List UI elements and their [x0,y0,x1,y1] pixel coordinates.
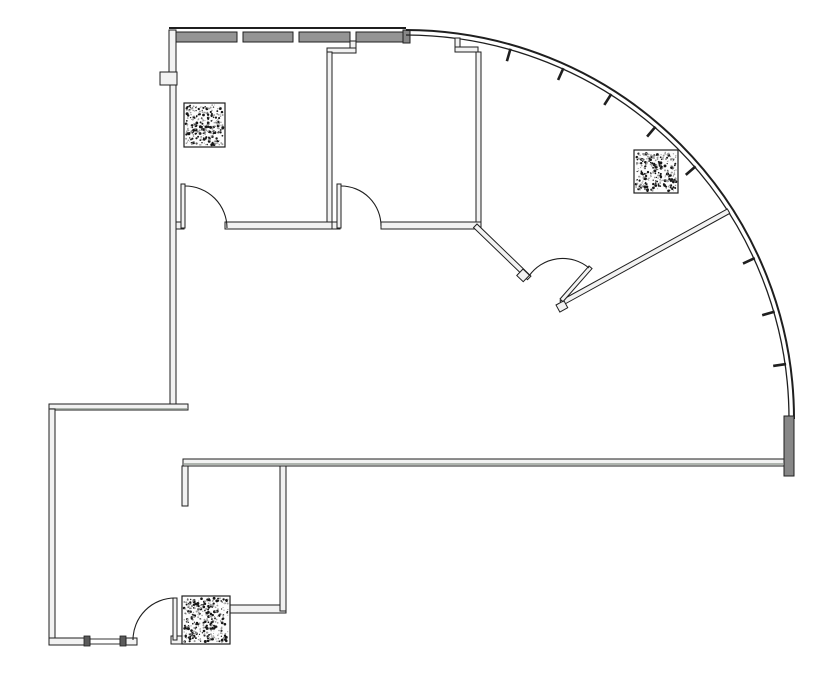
stipple-dot [187,620,189,622]
stipple-dot [198,623,200,625]
stipple-dot [646,161,648,163]
stipple-dot [659,182,660,183]
stipple-dot [217,113,218,114]
column-top-left [184,103,225,147]
top-wall-glazing-segment [169,32,237,42]
stipple-dot [198,601,199,602]
stipple-dot [201,123,203,125]
bottom-wall-segment [126,638,137,645]
stipple-dot [211,136,212,137]
stipple-dot [211,126,212,127]
stipple-dot [187,126,188,127]
stipple-dot [191,142,192,143]
stipple-dot [192,118,194,120]
main-bottom-wall-stub [182,466,188,506]
door-angled-room [529,258,592,301]
stipple-dot [192,131,194,133]
stipple-dot [640,155,641,156]
stipple-dot [213,128,214,129]
stipple-dot [210,601,211,602]
stipple-dot [227,631,228,632]
stipple-dot [213,136,214,137]
stipple-dot [190,629,193,632]
stipple-dot [206,618,208,620]
room1-front-wall [225,222,332,229]
stipple-dot [195,133,197,135]
stipple-dot [197,125,198,126]
stipple-dot [189,612,191,614]
stipple-dot [189,132,191,134]
stipple-dot [196,115,198,117]
stipple-dot [669,189,670,190]
stipple-dot [648,178,650,180]
stipple-dot [672,181,675,184]
stipple-dot [215,606,217,608]
stipple-dot [220,600,222,602]
stipple-dot [214,616,215,617]
stipple-dot [645,165,647,167]
stipple-dot [203,630,206,633]
stipple-dot [197,616,199,618]
stipple-dot [674,187,676,189]
stipple-dot [193,123,194,124]
stipple-dot [661,168,662,169]
stipple-dot [641,182,643,184]
stipple-dot [219,597,221,599]
stipple-dot [640,184,641,185]
stipple-dot [192,636,194,638]
stipple-dot [220,621,222,623]
left-wall-main [170,85,176,407]
stipple-dot [194,110,195,111]
stipple-dot [639,180,641,182]
stipple-dot [214,141,215,142]
stipple-dot [217,128,218,129]
stipple-dot [672,158,674,160]
door-bottom-entry [133,598,177,640]
stipple-dot [655,160,657,162]
stipple-dot [219,140,220,141]
stipple-dot [642,181,643,182]
stipple-dot [192,110,194,112]
stipple-dot [665,152,666,153]
stipple-dot [657,177,658,178]
stipple-dot [644,187,646,189]
stipple-dot [200,106,201,107]
stipple-dot [653,180,654,181]
stipple-dot [639,153,640,154]
stipple-dot [207,636,209,638]
stipple-dot [205,614,207,616]
stipple-dot [205,144,206,145]
stipple-dot [194,616,196,618]
stipple-dot [216,110,218,112]
stipple-dot [188,634,189,635]
stipple-dot [660,173,662,175]
stipple-dot [223,637,225,639]
stipple-dot [202,128,203,129]
stipple-dot [208,602,210,604]
stipple-dot [639,155,640,156]
stipple-dot [203,135,204,136]
stipple-dot [640,162,642,164]
stipple-dot [652,183,654,185]
stipple-dot [206,632,208,634]
stipple-dot [210,133,211,134]
stipple-dot [211,104,213,106]
lower-vertical-wall [280,459,286,611]
stipple-dot [647,179,648,180]
stipple-dot [207,131,209,133]
stipple-dot [662,167,663,168]
stipple-dot [202,121,203,122]
stipple-dot [641,170,643,172]
stipple-dot [187,114,189,116]
stipple-dot [220,114,221,115]
stipple-dot [184,601,185,602]
stipple-dot [201,142,202,143]
columns [182,103,678,644]
door-room2 [337,184,381,228]
stipple-dot [185,624,186,625]
stipple-dot [185,601,187,603]
stipple-dot [675,169,676,170]
stipple-dot [208,139,209,140]
stipple-dot [221,124,223,126]
stipple-dot [187,599,189,601]
stipple-dot [194,640,196,642]
stipple-dot [214,617,215,618]
stipple-dot [660,164,661,165]
angled-partitions [474,209,730,312]
stipple-dot [191,605,193,607]
stipple-dot [193,612,194,613]
stipple-dot [669,185,671,187]
stipple-dot [216,140,218,142]
stipple-dot [184,635,185,636]
stipple-dot [198,612,200,614]
stipple-dot [207,598,208,599]
stipple-dot [214,105,215,106]
stipple-dot [215,621,217,623]
stipple-dot [215,638,216,639]
stipple-dot [660,156,662,158]
stipple-dot [222,615,224,617]
stipple-dot [642,186,643,187]
stipple-dot [645,189,646,190]
stipple-dot [648,160,649,161]
stipple-dot [643,176,645,178]
stipple-dot [204,143,205,144]
stipple-dot [217,627,218,628]
stipple-dot [636,180,637,181]
door-bottom-leaf [173,598,177,640]
stipple-dot [211,635,213,637]
door-room2-swing-arc [341,186,381,226]
stipple-dot [202,107,204,109]
stipple-dot [214,637,215,638]
stipple-dot [638,176,640,178]
stipple-dot [211,614,213,616]
stipple-dot [217,142,218,143]
stipple-dot [223,607,224,608]
stipple-dot [191,108,193,110]
stipple-dot [189,640,191,642]
stipple-dot [209,117,210,118]
stipple-dot [655,173,657,175]
stipple-dot [195,137,197,139]
stipple-dot [664,169,666,171]
stipple-dot [201,615,202,616]
stipple-dot [210,633,212,635]
stipple-dot [650,164,652,166]
stipple-dot [659,179,661,181]
stipple-dot [214,125,215,126]
stipple-dot [200,607,202,609]
lower-wing-left-wall [49,409,55,645]
stipple-dot [204,106,206,108]
top-window-wall [169,28,410,43]
stipple-dot [213,142,214,143]
stipple-dot [195,633,197,635]
stipple-dot [211,624,213,626]
stipple-dot [217,604,218,605]
stipple-dot [200,631,201,632]
stipple-dot [675,178,677,180]
stipple-dot [190,625,191,626]
stipple-dot [217,622,219,624]
stipple-dot [200,136,202,138]
stipple-dot [213,631,214,632]
stipple-dot [204,120,205,121]
stipple-dot [186,142,188,144]
stipple-dot [210,626,212,628]
stipple-dot [186,604,188,606]
stipple-dot [218,640,220,642]
stipple-dot [216,122,218,124]
stipple-dot [638,170,639,171]
stipple-dot [216,611,217,612]
doors [133,184,592,640]
stipple-dot [667,173,668,174]
stipple-dot [213,626,214,627]
stipple-dot [220,613,222,615]
stipple-dot [668,178,671,181]
stipple-dot [213,633,214,634]
stipple-dot [668,177,670,179]
stipple-dot [184,641,186,643]
arc-mullion-ticks [507,49,786,366]
stipple-dot [186,629,187,630]
stipple-dot [204,600,206,602]
stipple-dot [647,183,648,184]
stipple-dot [196,142,198,144]
stipple-dot [222,601,223,602]
stipple-dot [188,636,189,637]
stipple-dot [212,120,213,121]
stipple-dot [658,183,660,185]
stipple-dot [203,627,205,629]
stipple-dot [645,175,647,177]
stipple-dot [668,153,670,155]
stipple-dot [212,115,214,117]
curved-wall-end-cap [784,416,794,476]
top-wall-glazing-segment [356,32,403,42]
stipple-dot [648,159,649,160]
stipple-dot [663,155,665,157]
stipple-dot [652,167,654,169]
stipple-dot [218,128,220,130]
stipple-dot [227,602,228,603]
stipple-dot [664,164,667,167]
stipple-dot [217,600,219,602]
stipple-dot [672,168,673,169]
stipple-dot [189,610,190,611]
stipple-dot [193,105,195,107]
stipple-dot [662,180,663,181]
stipple-dot [670,174,671,175]
stipple-dot [665,175,666,176]
stipple-dot [221,636,222,637]
stipple-dot [652,172,654,174]
stipple-dot [201,118,203,120]
door-room1 [181,184,227,228]
stipple-dot [638,168,639,169]
arc-mullion-tick [743,258,755,264]
stipple-dot [644,177,647,180]
stipple-dot [670,184,672,186]
stipple-dot [657,188,658,189]
stipple-dot [674,172,675,173]
stipple-dot [661,180,662,181]
arc-mullion-tick [762,312,775,316]
stipple-dot [672,161,673,162]
stipple-dot [659,185,661,187]
stipple-dot [667,170,669,172]
stipple-dot [657,155,658,156]
stipple-dot [652,156,654,158]
lower-return-wall [230,605,286,613]
top-wall-glazing-segment [243,32,293,42]
stipple-dot [187,619,188,620]
stipple-dot [186,626,188,628]
stipple-dot [657,157,659,159]
door-bottom-swing-arc [133,598,175,640]
stipple-dot [198,639,199,640]
stipple-dot [184,619,185,620]
main-bottom-wall [183,459,784,466]
stipple-dot [671,188,673,190]
stipple-dot [194,623,195,624]
stipple-dot [652,190,654,192]
stipple-dot [184,631,185,632]
stipple-dot [663,183,665,185]
door-room1-swing-arc [185,186,227,228]
stipple-dot [203,132,204,133]
stipple-dot [661,154,662,155]
stipple-dot [198,114,200,116]
stipple-dot [202,611,203,612]
stipple-dot [657,158,659,160]
stipple-dot [220,121,222,123]
stipple-dot [213,106,214,107]
stipple-dot [198,112,199,113]
stipple-dot [646,163,647,164]
stipple-dot [189,635,191,637]
stipple-dot [221,641,223,643]
stipple-dot [656,169,657,170]
stipple-dot [218,114,220,116]
stipple-dot [218,638,219,639]
floor-plan-drawing [0,0,835,678]
stipple-dot [195,637,197,639]
stipple-dot [189,638,192,641]
stipple-dot [211,110,213,112]
stipple-dot [205,608,207,610]
stipple-dot [666,188,667,189]
stipple-dot [671,178,674,181]
stipple-dot [659,161,662,164]
stipple-dot [650,175,651,176]
top-wall-end-cap [403,30,410,43]
stipple-dot [227,609,228,610]
stipple-dot [226,612,227,613]
stipple-dot [673,176,674,177]
stipple-dot [198,609,200,611]
stipple-dot [208,634,210,636]
stipple-dot [203,121,204,122]
stipple-dot [227,603,229,605]
stipple-dot [186,120,188,122]
stipple-dot [213,597,216,600]
arc-mullion-tick [507,49,511,62]
stipple-dot [672,187,673,188]
stipple-dot [207,639,210,642]
stipple-dot [204,137,205,138]
stipple-dot [185,138,187,140]
stipple-dot [227,615,228,616]
door-room2-leaf [337,184,341,228]
partition-wall [476,52,481,227]
stipple-dot [217,598,219,600]
stipple-dot [196,632,198,634]
stipple-dot [191,124,193,126]
arc-mullion-tick [604,94,611,105]
stipple-dot [674,170,675,171]
stipple-dot [193,627,195,629]
stipple-dot [210,605,211,606]
stipple-dot [203,137,204,138]
stipple-dot [190,599,191,600]
stipple-dot [187,128,188,129]
stipple-dot [646,158,648,160]
stipple-dot [643,184,644,185]
stipple-dot [199,628,201,630]
stipple-dot [199,144,201,146]
stipple-dot [204,610,206,612]
stipple-dot [219,123,220,124]
stipple-dot [199,613,200,614]
stipple-dot [188,139,190,141]
stipple-dot [671,187,672,188]
stipple-dot [221,608,222,609]
stipple-dot [199,139,201,141]
stipple-dot [225,633,227,635]
stipple-dot [215,116,217,118]
stipple-dot [636,162,638,164]
stipple-dot [665,186,667,188]
stipple-dot [190,138,191,139]
